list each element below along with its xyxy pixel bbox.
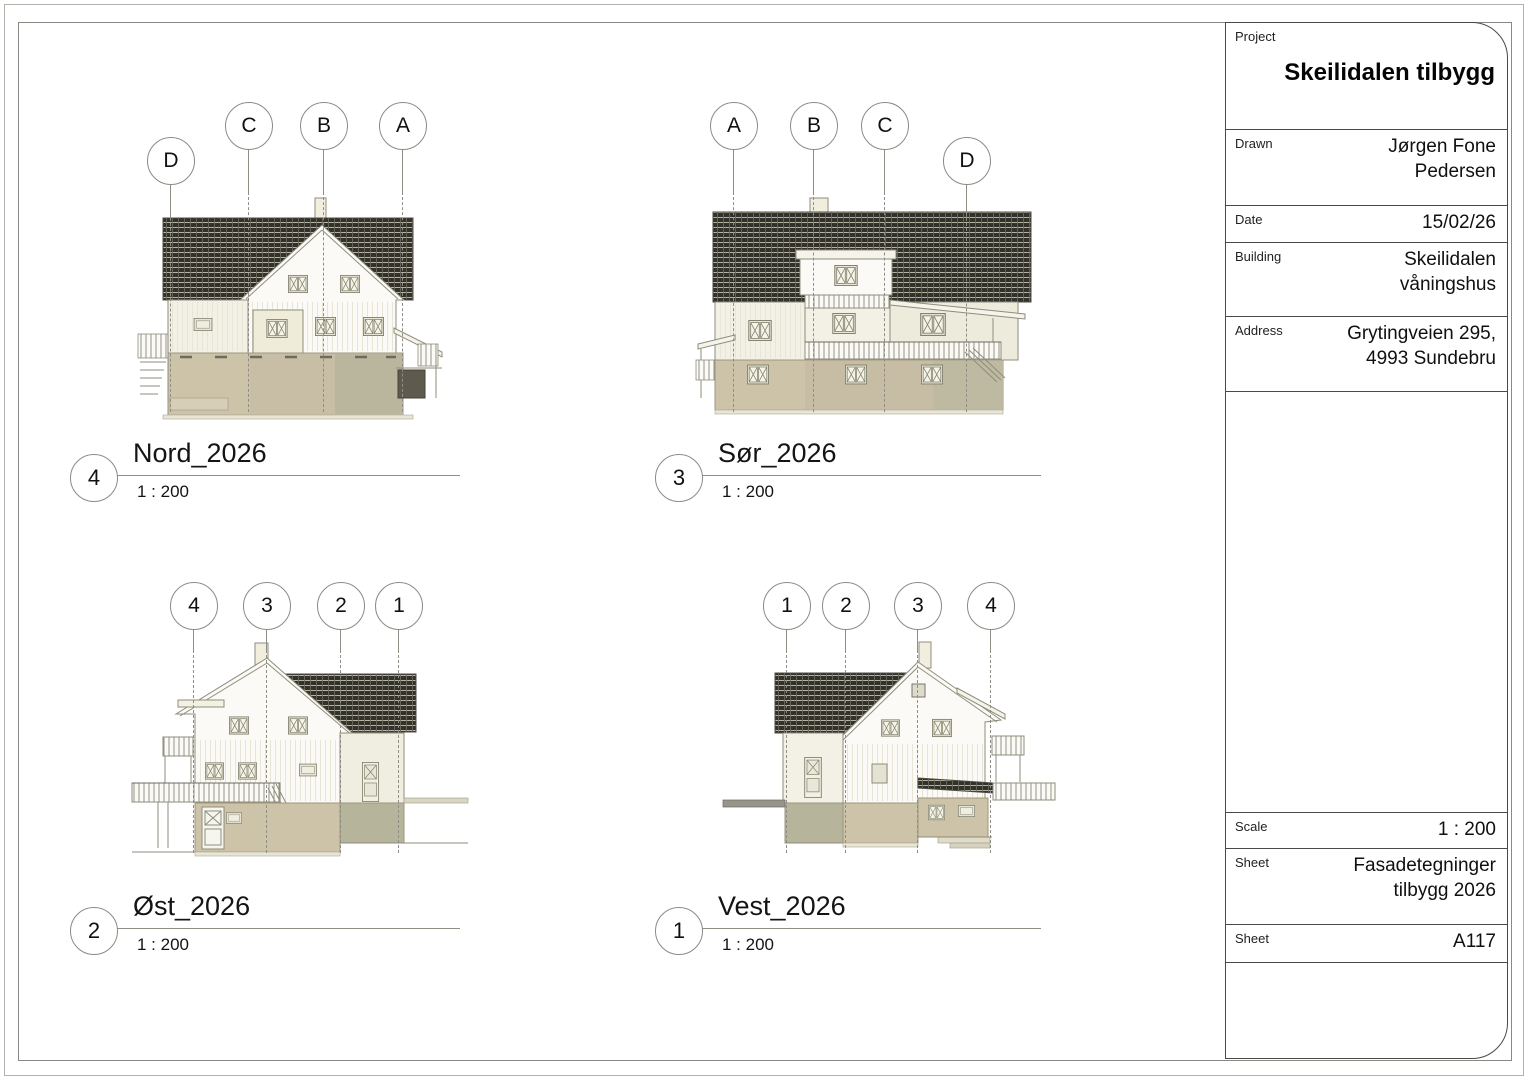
drawn-value: Jørgen Fone Pedersen [1388,135,1496,184]
sheet-name-label: Sheet [1235,855,1269,870]
attic-window [912,684,925,697]
view-title: Vest_2026 [718,891,846,922]
ost-elevation-drawing [118,640,478,870]
window [288,717,307,734]
ground [163,415,413,419]
grid-line [845,628,846,650]
window [288,275,307,292]
balcony-posts [996,755,1020,782]
small-window [872,764,887,783]
grid-bubble-label: B [807,114,821,138]
date-row: Date 15/02/26 [1226,205,1507,242]
ground [195,852,340,856]
grid-line [170,218,171,412]
grid-bubble-label: D [163,149,178,173]
view-title: Øst_2026 [133,891,250,922]
window [299,764,316,776]
grid-bubble-label: 3 [912,594,924,618]
view-number: 4 [88,465,100,491]
door [362,762,378,801]
window [833,313,855,333]
view-number: 3 [673,465,685,491]
project-row: Project Skeilidalen tilbygg [1226,23,1507,129]
grid-bubble: A [710,102,758,150]
view-title-rule [701,475,1041,476]
building-value: Skeilidalen våningshus [1400,248,1496,297]
sheet-number-label: Sheet [1235,931,1269,946]
siding-texture [845,744,983,801]
grid-bubble-label: 2 [840,594,852,618]
grid-bubble: 4 [967,582,1015,630]
stairs-left [138,334,168,402]
grid-line [917,650,918,853]
grid-bubble-label: A [396,114,410,138]
grid-line [813,192,814,412]
window [363,317,383,335]
step [950,843,990,848]
dormer-balcony-railing [805,295,889,308]
grid-bubble: 1 [375,582,423,630]
empty-area [1226,391,1507,812]
grid-bubble-label: 1 [781,594,793,618]
grid-line [193,628,194,650]
grid-bubble-label: C [877,114,892,138]
terrace [404,798,468,803]
window [267,319,287,337]
grid-line [966,218,967,412]
grid-bubble: D [147,137,195,185]
basement [843,798,988,843]
sheet-name-value: Fasadetegninger tilbygg 2026 [1353,854,1496,903]
view-number: 1 [673,918,685,944]
vest-elevation-drawing [700,640,1080,870]
building-row: Building Skeilidalen våningshus [1226,242,1507,316]
grid-line [733,148,734,192]
ground-ledge [723,800,785,807]
window [340,275,359,292]
grid-line [340,650,341,853]
window [881,720,899,736]
grid-line [193,650,194,853]
railing-right [993,783,1055,800]
ground [715,410,1003,414]
scale-label: Scale [1235,819,1268,834]
address-row: Address Grytingveien 295, 4993 Sundebru [1226,316,1507,391]
title-block: Project Skeilidalen tilbygg Drawn Jørgen… [1225,22,1508,1059]
grid-bubble: B [790,102,838,150]
bargeboard [178,700,224,707]
date-value: 15/02/26 [1422,211,1496,236]
deck-railing [132,783,280,802]
window [205,763,223,779]
view-scale: 1 : 200 [722,482,774,502]
project-label: Project [1235,29,1275,44]
grid-bubble-label: 1 [393,594,405,618]
view-scale: 1 : 200 [137,482,189,502]
grid-line [884,148,885,192]
grid-line [402,148,403,192]
grid-line [786,650,787,853]
view-number-bubble: 1 [655,907,703,955]
project-title: Skeilidalen tilbygg [1284,59,1495,87]
view-title-rule [701,928,1041,929]
grid-bubble: 2 [822,582,870,630]
grid-bubble: 2 [317,582,365,630]
window [835,265,857,285]
deck-railing [805,342,1001,359]
grid-line [340,628,341,650]
grid-bubble: D [943,137,991,185]
grid-line [990,628,991,650]
grid-line [266,628,267,650]
view-title: Nord_2026 [133,438,267,469]
view-number: 2 [88,918,100,944]
grid-bubble: 3 [243,582,291,630]
sheet-number-value: A117 [1453,930,1496,955]
grid-line [398,650,399,853]
grid-bubble: B [300,102,348,150]
basement [715,360,1003,410]
view-number-bubble: 2 [70,907,118,955]
grid-line [398,628,399,650]
view-title: Sør_2026 [718,438,837,469]
scale-row: Scale 1 : 200 [1226,812,1507,848]
grid-line [323,148,324,192]
ground [843,843,918,847]
grid-bubble-label: 2 [335,594,347,618]
view-title-rule [116,475,460,476]
grid-bubble: C [861,102,909,150]
sheet-name-row: Sheet Fasadetegninger tilbygg 2026 [1226,848,1507,924]
view-number-bubble: 3 [655,454,703,502]
extension [340,733,404,843]
window [932,719,951,736]
grid-line [845,650,846,853]
grid-bubble-label: A [727,114,741,138]
door [805,757,822,797]
view-scale: 1 : 200 [137,935,189,955]
grid-bubble: 4 [170,582,218,630]
balcony-railing [163,737,193,756]
grid-bubble: A [379,102,427,150]
grid-line [266,650,267,853]
view-title-rule [116,928,460,929]
basement [168,353,403,415]
grid-line [786,628,787,650]
building-label: Building [1235,249,1281,264]
nord-elevation-drawing [130,192,460,422]
grid-bubble: 1 [763,582,811,630]
grid-bubble-label: C [241,114,256,138]
drawn-label: Drawn [1235,136,1273,151]
window [315,317,335,335]
grid-bubble-label: 3 [261,594,273,618]
grid-line [323,192,324,412]
grid-bubble-label: D [959,149,974,173]
date-label: Date [1235,212,1262,227]
grid-line [813,148,814,192]
grid-bubble: C [225,102,273,150]
sor-elevation-drawing [693,192,1033,422]
grid-line [966,183,967,218]
basement [195,803,340,852]
scale-value: 1 : 200 [1438,818,1496,843]
extension [783,733,843,843]
grid-line [990,650,991,853]
grid-bubble-label: 4 [985,594,997,618]
grid-line [884,192,885,412]
grid-line [402,192,403,412]
address-label: Address [1235,323,1283,338]
window [194,318,212,330]
empty-bottom-area [1226,962,1507,1058]
step [938,837,990,843]
sheet-number-row: Sheet A117 [1226,924,1507,962]
grid-line [248,148,249,192]
grid-line [248,192,249,412]
balcony-railing [992,736,1024,755]
view-number-bubble: 4 [70,454,118,502]
drawn-row: Drawn Jørgen Fone Pedersen [1226,129,1507,205]
window [238,763,256,779]
view-scale: 1 : 200 [722,935,774,955]
grid-line [917,628,918,650]
grid-bubble-label: B [317,114,331,138]
balcony-posts [165,756,191,783]
window [921,314,946,336]
grid-bubble: 3 [894,582,942,630]
drawing-sheet: D C B A 4 Nord_2026 1 : 200 [0,0,1528,1080]
dormer-roof [796,250,896,259]
grid-line [170,183,171,218]
window [229,717,248,734]
address-value: Grytingveien 295, 4993 Sundebru [1347,322,1496,371]
grid-bubble-label: 4 [188,594,200,618]
window [749,320,771,340]
grid-line [733,192,734,412]
deck-posts [158,802,168,848]
